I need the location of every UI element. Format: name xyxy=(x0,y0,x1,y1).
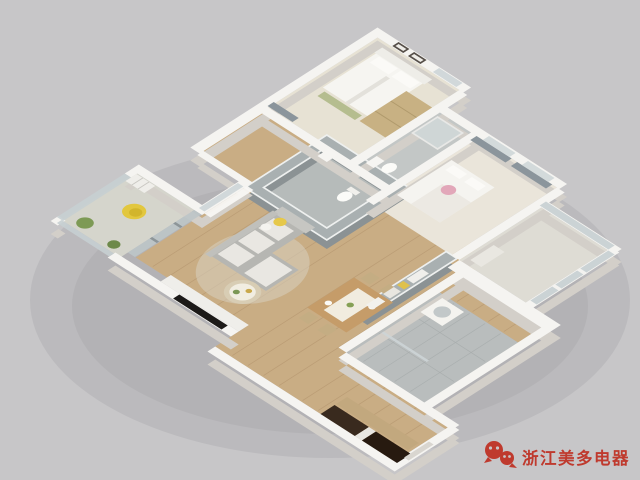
wechat-eye xyxy=(489,446,492,449)
screenshot-stage: 浙江美多电器 xyxy=(0,0,640,480)
wechat-eye xyxy=(496,446,499,449)
watermark-text: 浙江美多电器 xyxy=(522,448,630,468)
wechat-eye xyxy=(508,455,511,458)
apartment-3d-render: 浙江美多电器 xyxy=(0,0,640,480)
wechat-eye xyxy=(503,455,506,458)
